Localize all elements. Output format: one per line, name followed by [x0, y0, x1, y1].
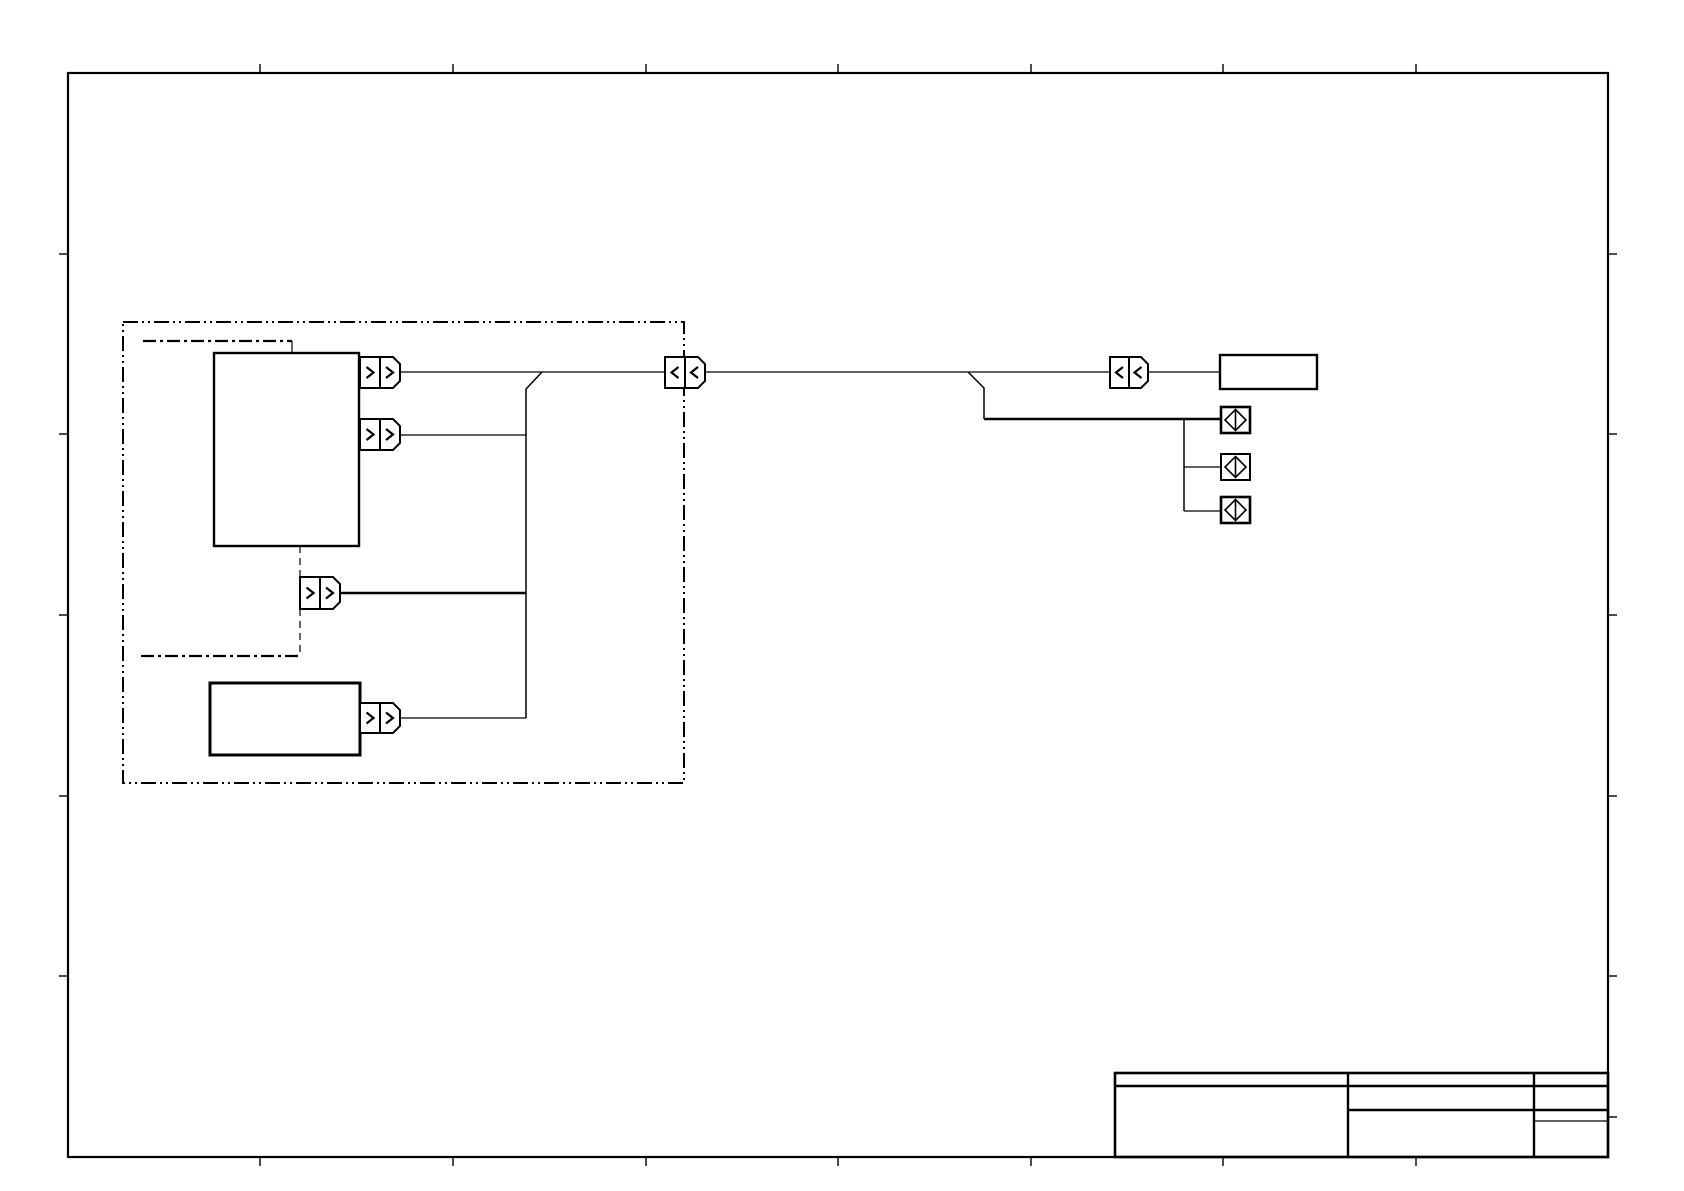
component-box-secondary[interactable]: [210, 683, 360, 755]
connector-3-housing[interactable]: [320, 577, 340, 609]
connector-1-pin[interactable]: [360, 357, 380, 388]
connector-2-pin[interactable]: [360, 419, 380, 450]
component-group-boundary: [123, 322, 684, 783]
component-box-main[interactable]: [214, 353, 359, 546]
connector-2-housing[interactable]: [380, 419, 400, 450]
inline-connector-left-pin[interactable]: [665, 357, 685, 388]
harness-vertical: [526, 372, 542, 718]
sheet-border: [68, 73, 1608, 1157]
connector-3-pin[interactable]: [300, 577, 320, 609]
wiring-diagram-canvas: [0, 0, 1684, 1191]
inline-connector-right-housing[interactable]: [1129, 357, 1148, 388]
connector-4-pin[interactable]: [360, 703, 380, 733]
drawing-sheet: [0, 0, 1684, 1191]
inline-connector-left-housing[interactable]: [685, 357, 705, 388]
connector-1-housing[interactable]: [380, 357, 400, 388]
wire-splice-drop: [968, 372, 984, 419]
component-box-right[interactable]: [1220, 355, 1317, 389]
connector-4-housing[interactable]: [380, 703, 400, 733]
inline-connector-right-pin[interactable]: [1110, 357, 1129, 388]
